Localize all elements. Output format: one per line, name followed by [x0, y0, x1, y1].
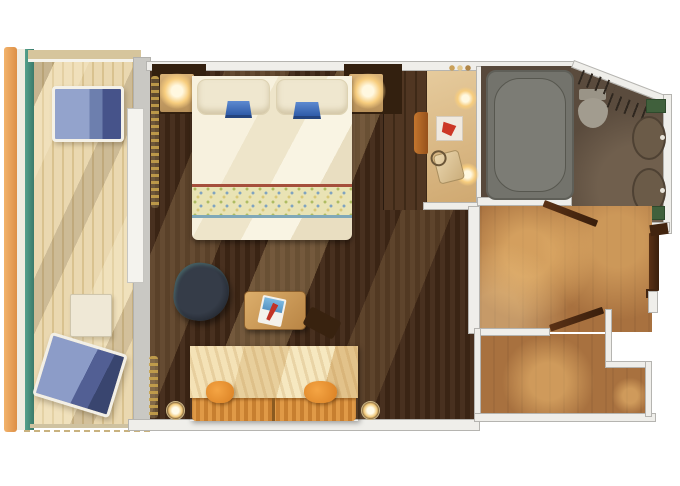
- vestibule-floor-step: [612, 368, 647, 416]
- corridor-floor-glow: [480, 206, 652, 332]
- vestibule-step-glow: [612, 368, 647, 416]
- vestibule-floor-glow: [479, 334, 612, 416]
- vestibule-top-wall: [474, 328, 550, 336]
- floor-plan: [0, 0, 680, 486]
- entry-right-wall: [648, 291, 658, 313]
- vestibule-right-upper-wall: [605, 309, 612, 365]
- vestibule-bottom-wall: [474, 413, 656, 422]
- vestibule-floor: [479, 334, 612, 416]
- vestibule-left-wall: [474, 328, 481, 422]
- entry-hall: [0, 0, 680, 486]
- vestibule-right-lower-wall: [645, 361, 652, 417]
- entry-door: [649, 233, 659, 291]
- corridor-floor: [480, 206, 652, 332]
- entry-door-frame-top: [649, 223, 668, 236]
